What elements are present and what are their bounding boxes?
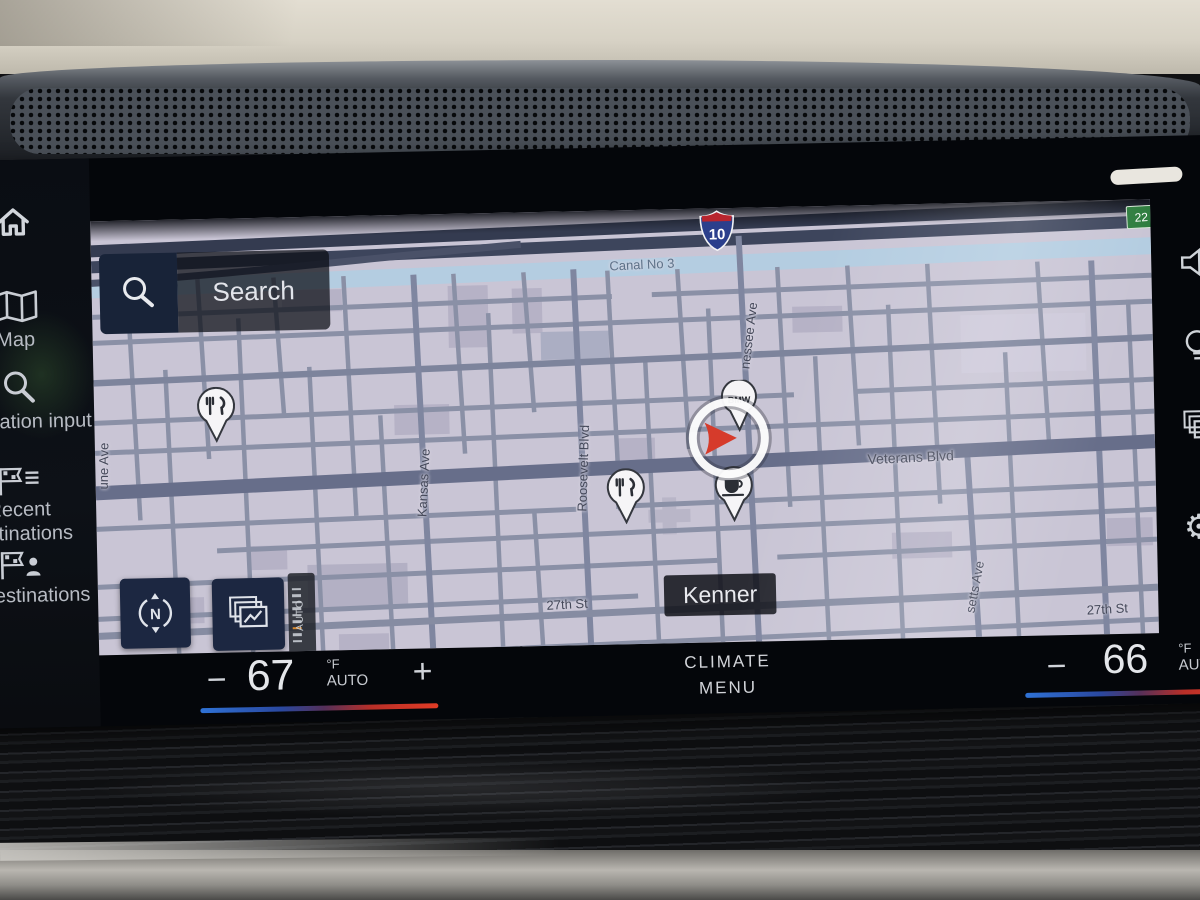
sidebar-item-destination-input[interactable]: Destination input <box>0 408 100 436</box>
sidebar-item-map[interactable]: Map <box>0 326 98 354</box>
lightbulb-icon[interactable] <box>1180 327 1200 368</box>
auto-zoom-slider[interactable]: AUTO <box>288 573 317 656</box>
driver-temp-gradient <box>200 703 438 713</box>
recent-flag-icon[interactable] <box>0 465 43 496</box>
city-label: Kenner <box>664 573 777 616</box>
passenger-temp-down-button[interactable]: − <box>1046 647 1067 686</box>
street-label-roosevelt-blvd: Roosevelt Blvd <box>574 425 592 512</box>
driver-temp-up-button[interactable]: + <box>412 652 433 691</box>
map-icon[interactable] <box>0 290 39 325</box>
infotainment-display: Map Destination input Recent destination… <box>0 134 1200 728</box>
map-canvas[interactable]: Veterans Blvd Kansas Ave Roosevelt Blvd … <box>90 199 1159 655</box>
sidebar-item-my-destinations[interactable]: My destinations <box>0 582 101 610</box>
media-shortcut-icon[interactable] <box>1178 245 1200 280</box>
compass-button[interactable]: N <box>120 577 191 648</box>
search-control[interactable]: Search <box>99 249 331 334</box>
magnifier-icon[interactable] <box>0 367 41 410</box>
svg-text:10: 10 <box>709 226 726 243</box>
apps-stack-icon[interactable] <box>1181 407 1200 446</box>
climate-menu-button[interactable]: CLIMATE MENU <box>662 648 793 702</box>
settings-gear-icon[interactable]: ⚙ <box>1183 507 1200 548</box>
driver-temp-down-button[interactable]: − <box>206 661 227 700</box>
restaurant-pin[interactable] <box>194 386 239 443</box>
home-icon[interactable] <box>0 202 34 243</box>
svg-text:N: N <box>150 606 161 623</box>
driver-temp-value: 67 <box>246 651 295 701</box>
auto-zoom-label: AUTO <box>295 599 307 631</box>
search-button-label[interactable]: Search <box>177 249 331 332</box>
route-badge: 22 <box>1126 205 1157 230</box>
my-flag-icon[interactable] <box>0 549 45 580</box>
passenger-temp-value: 66 <box>1102 635 1149 683</box>
heading-arrow <box>704 422 737 455</box>
interstate-10-shield: 10 <box>698 210 736 252</box>
restaurant-pin-2[interactable] <box>603 468 648 525</box>
sidebar-item-recent-destinations[interactable]: Recent destinations <box>0 496 101 548</box>
photo-of-car-infotainment: { "sidebar": { "home_icon": "home-icon",… <box>0 0 1200 900</box>
passenger-temp-unit: °F AUTO <box>1178 641 1200 673</box>
vehicle-position-marker <box>684 393 774 483</box>
search-icon[interactable] <box>99 253 179 335</box>
street-label-27th-st-right: 27th St <box>1086 600 1128 617</box>
street-label-left-edge-ave: une Ave <box>96 443 112 490</box>
street-label-27th-st-left: 27th St <box>546 596 588 613</box>
canal-label: Canal No 3 <box>609 255 675 273</box>
driver-temp-unit: °F AUTO <box>326 657 368 689</box>
map-layers-button[interactable] <box>212 577 285 650</box>
passenger-temp-gradient <box>1025 688 1200 698</box>
nav-sidebar: Map Destination input Recent destination… <box>0 158 101 728</box>
bezel-reflection <box>1110 166 1183 185</box>
